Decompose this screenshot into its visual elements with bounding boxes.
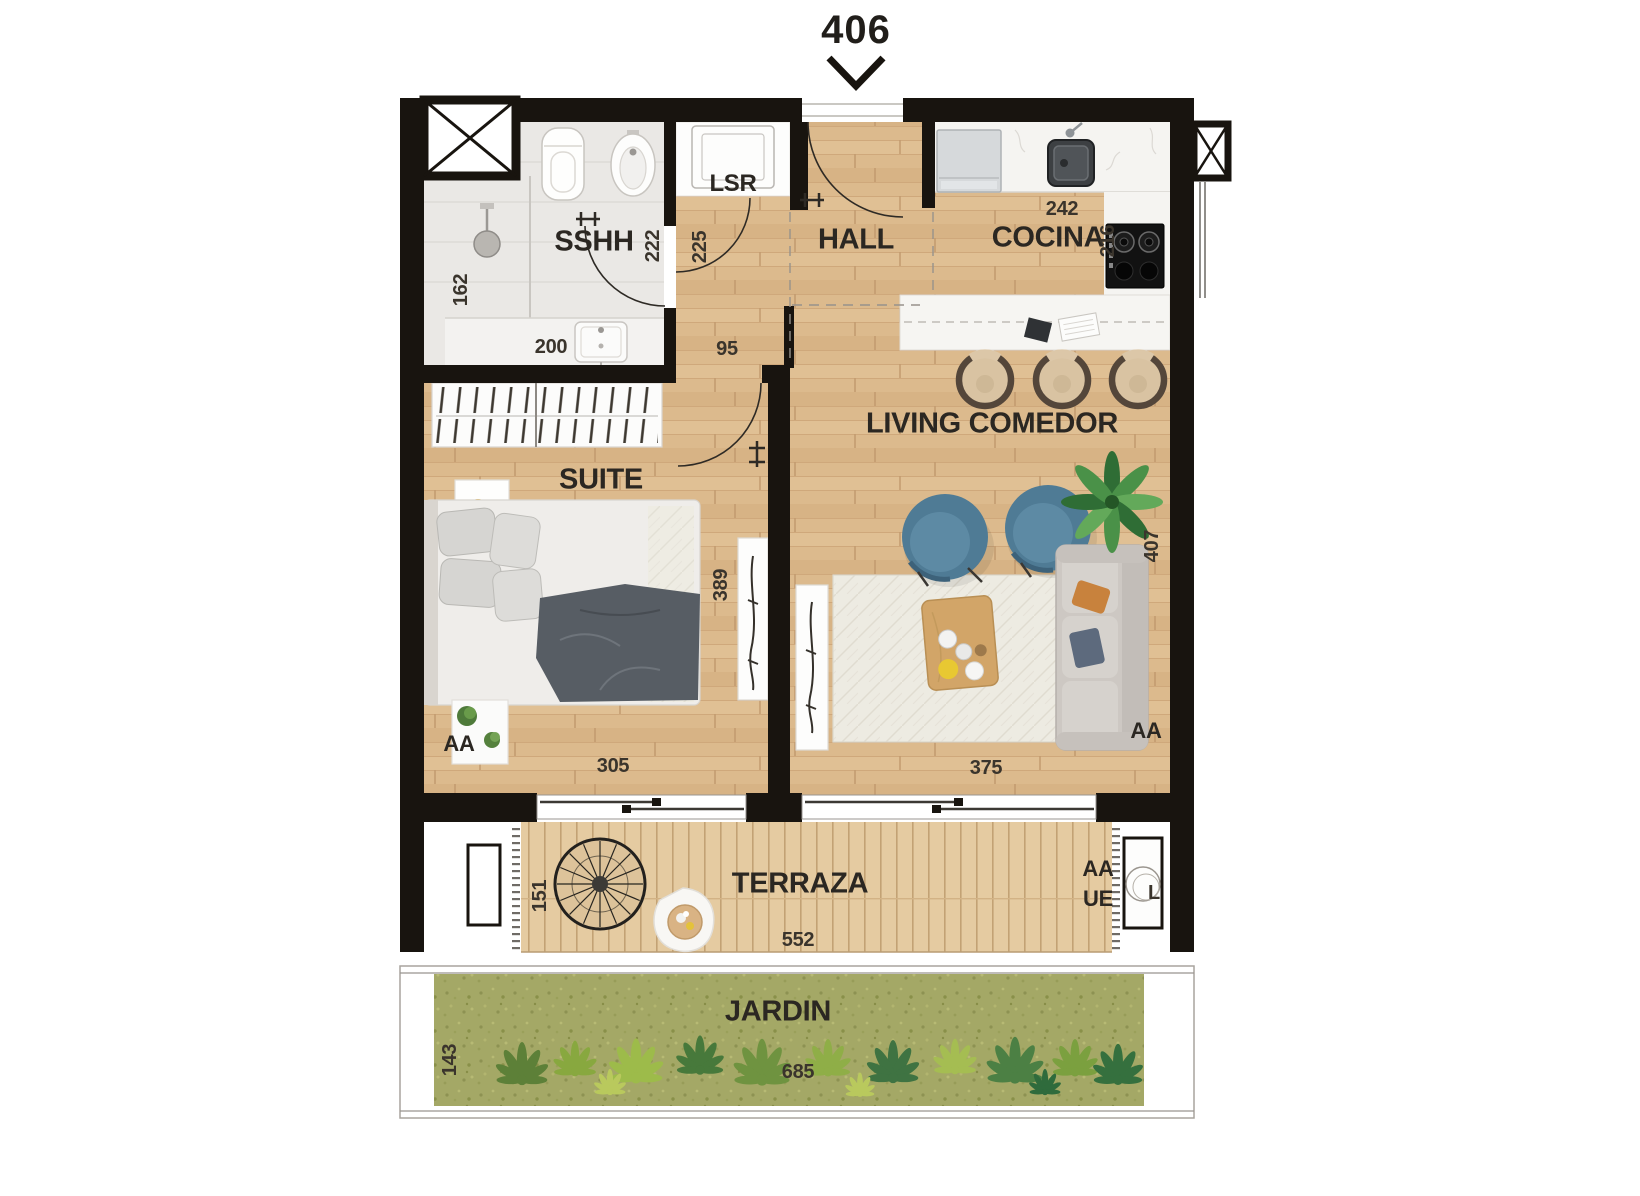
dimension-living-depth: 407 bbox=[1142, 530, 1162, 562]
kitchen-island bbox=[900, 295, 1170, 350]
dimension-vanity-width: 200 bbox=[535, 337, 567, 357]
dimension-living-width: 375 bbox=[970, 758, 1002, 778]
annotation-aa-terraza: AA bbox=[1082, 858, 1113, 880]
annotation-l-terraza: L bbox=[1148, 883, 1160, 903]
fridge-icon bbox=[937, 130, 1001, 192]
entry-direction-arrow bbox=[829, 58, 883, 86]
bar-stools bbox=[959, 354, 1164, 406]
bar-stool bbox=[959, 354, 1011, 406]
dimension-sshh-width: 222 bbox=[643, 230, 663, 262]
dimension-cocina-depth: 216 bbox=[1098, 225, 1118, 257]
pillow bbox=[436, 507, 498, 557]
floor-plan-page: 406 SSHH LSR HALL COCINA LIVING COMEDOR … bbox=[0, 0, 1640, 1196]
room-label-living-comedor: LIVING COMEDOR bbox=[866, 410, 1118, 439]
dimension-terraza-width: 552 bbox=[782, 930, 814, 950]
shaft-right bbox=[1194, 124, 1228, 298]
planter bbox=[468, 845, 500, 925]
drain-strip bbox=[512, 826, 520, 950]
dimension-jardin-width: 685 bbox=[782, 1062, 814, 1082]
suite-console bbox=[738, 538, 768, 700]
dimension-suite-width: 305 bbox=[597, 756, 629, 776]
blanket bbox=[536, 584, 700, 702]
room-label-terraza: TERRAZA bbox=[732, 870, 868, 899]
bar-stool bbox=[1036, 354, 1088, 406]
wardrobe bbox=[432, 383, 662, 447]
dimension-cocina-width: 242 bbox=[1046, 199, 1078, 219]
dimension-corridor-depth: 225 bbox=[690, 231, 710, 263]
bed bbox=[424, 500, 700, 705]
wire-chair bbox=[555, 839, 645, 929]
annotation-aa-living: AA bbox=[1130, 720, 1161, 742]
dimension-corridor-width: 95 bbox=[716, 339, 738, 359]
garden bbox=[400, 966, 1194, 1118]
coffee-table bbox=[921, 595, 999, 691]
room-label-cocina: COCINA bbox=[992, 224, 1105, 253]
pillow bbox=[489, 512, 542, 570]
dimension-jardin-depth: 143 bbox=[440, 1044, 460, 1076]
room-label-suite: SUITE bbox=[559, 466, 643, 495]
unit-number-label: 406 bbox=[821, 10, 891, 50]
pillow bbox=[438, 558, 501, 608]
dimension-suite-depth: 389 bbox=[711, 569, 731, 601]
annotation-ue-terraza: UE bbox=[1083, 888, 1113, 910]
bar-stool bbox=[1112, 354, 1164, 406]
suite-sliding-door bbox=[537, 795, 746, 823]
room-label-lsr: LSR bbox=[709, 172, 756, 196]
shaft-left bbox=[424, 100, 516, 176]
room-label-sshh: SSHH bbox=[554, 228, 633, 257]
room-label-jardin: JARDIN bbox=[725, 998, 831, 1027]
dimension-terraza-depth: 151 bbox=[530, 880, 550, 912]
annotation-aa-suite: AA bbox=[443, 733, 474, 755]
living-sliding-door bbox=[802, 795, 1096, 823]
toilet-icon bbox=[542, 128, 584, 200]
dimension-shower-width: 162 bbox=[451, 274, 471, 306]
room-label-hall: HALL bbox=[818, 226, 894, 255]
pillow bbox=[492, 568, 544, 622]
drain-strip bbox=[1112, 826, 1120, 950]
tv-console bbox=[796, 585, 828, 750]
sliding-doors bbox=[537, 795, 1096, 823]
